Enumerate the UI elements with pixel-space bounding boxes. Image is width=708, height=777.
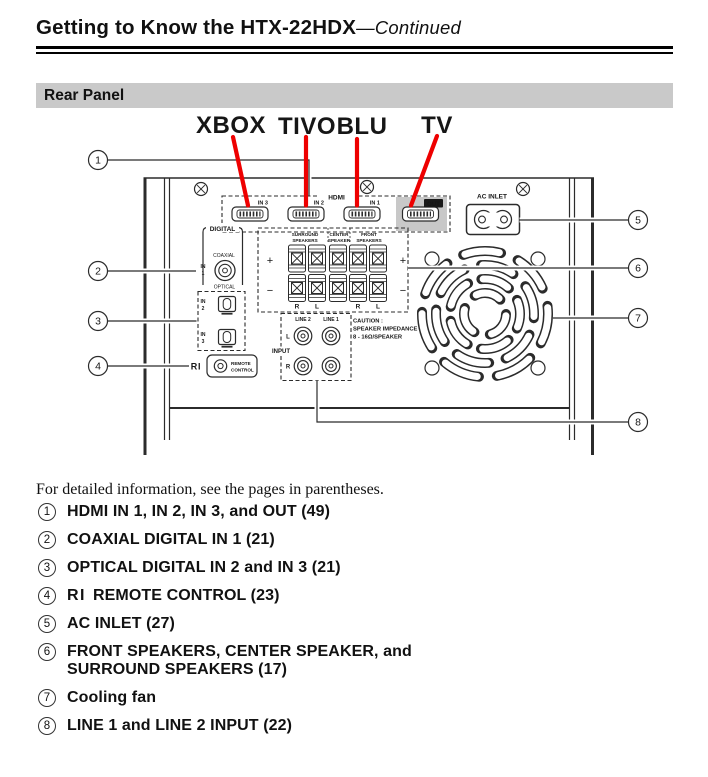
rca-jack: [294, 327, 312, 345]
hdmi-port-in2: [288, 207, 324, 221]
legend-item-text-rest: REMOTE CONTROL (23): [93, 587, 280, 604]
minus-left: −: [267, 285, 273, 297]
speaker-terminal: [289, 245, 306, 272]
speaker-terminal: [370, 275, 387, 302]
surround-r-label: R: [295, 304, 300, 311]
legend-item-text: COAXIAL DIGITAL IN 1 (21): [67, 531, 275, 549]
line-r-label: R: [286, 365, 291, 371]
legend-item: 2 COAXIAL DIGITAL IN 1 (21): [38, 531, 499, 549]
legend-item-text: LINE 1 and LINE 2 INPUT (22): [67, 717, 292, 735]
page-title: Getting to Know the HTX-22HDX—Continued: [36, 16, 461, 40]
caution-line-2: SPEAKER IMPEDANCE: [353, 327, 418, 333]
hdmi-group-label: HDMI: [328, 195, 345, 202]
minus-right: −: [400, 285, 406, 297]
legend-item: 7 Cooling fan: [38, 689, 499, 707]
caution-line-1: CAUTION :: [353, 319, 383, 325]
speaker-terminal: [330, 245, 347, 272]
coaxial-in-word: IN: [201, 264, 206, 270]
callout-7: 7: [635, 313, 641, 325]
center-label-1: CENTER: [330, 232, 350, 237]
legend-item-number: 6: [38, 643, 56, 661]
digital-group: DIGITAL COAXIAL IN 1 OPTICAL IN 2 IN 3: [198, 223, 245, 351]
speaker-terminal: [350, 245, 367, 272]
legend-item-number: 7: [38, 689, 56, 707]
title-divider: [36, 46, 673, 54]
legend-item: 5 AC INLET (27): [38, 615, 499, 633]
legend-item: 1 HDMI IN 1, IN 2, IN 3, and OUT (49): [38, 503, 499, 521]
annotation-tivo: TIVO: [278, 113, 336, 140]
center-label-2: SPEAKER: [328, 238, 351, 243]
legend-list: 1 HDMI IN 1, IN 2, IN 3, and OUT (49) 2 …: [38, 503, 499, 735]
front-label-1: FRONT: [361, 232, 377, 237]
annotation-xbox: XBOX: [196, 112, 266, 139]
legend-item-number: 8: [38, 717, 56, 735]
optical-port-in2: [219, 297, 236, 314]
callout-5: 5: [635, 215, 641, 227]
rca-jack: [322, 327, 340, 345]
line1-label: LINE 1: [323, 317, 339, 323]
coaxial-jack: [215, 261, 235, 281]
callout-1: 1: [95, 155, 101, 167]
optical-in2-num: 2: [202, 306, 205, 312]
ac-inlet-group: AC INLET: [467, 194, 520, 235]
remote-label-2: CONTROL: [231, 368, 254, 373]
rca-jack: [322, 357, 340, 375]
legend-item-number: 2: [38, 531, 56, 549]
rca-jack: [294, 357, 312, 375]
optical-label: OPTICAL: [214, 285, 236, 291]
legend-item-number: 3: [38, 559, 56, 577]
speaker-terminal: [309, 275, 326, 302]
optical-port-in3: [219, 330, 236, 347]
line2-label: LINE 2: [295, 317, 311, 323]
remote-label-1: REMOTE: [231, 361, 251, 366]
callout-3: 3: [95, 316, 101, 328]
manual-page: Getting to Know the HTX-22HDX—Continued …: [0, 0, 708, 777]
input-label: INPUT: [272, 349, 290, 355]
legend-item-text: OPTICAL DIGITAL IN 2 and IN 3 (21): [67, 559, 341, 577]
red-annotation-labels: XBOX TIVO BLU TV: [196, 112, 453, 140]
surround-l-label: L: [315, 304, 319, 311]
front-r-label: R: [356, 304, 361, 311]
annotation-blu: BLU: [337, 113, 388, 140]
legend-item-text: AC INLET (27): [67, 615, 175, 633]
hdmi-in2-label: IN 2: [314, 201, 324, 207]
callout-2: 2: [95, 266, 101, 278]
coaxial-label: COAXIAL: [213, 253, 235, 259]
digital-group-label: DIGITAL: [210, 226, 236, 233]
callout-8: 8: [635, 417, 641, 429]
legend-item: 6 FRONT SPEAKERS, CENTER SPEAKER, and SU…: [38, 643, 499, 679]
remote-jack: [214, 360, 226, 372]
legend-item-number: 1: [38, 503, 56, 521]
line-input-group: LINE 2 LINE 1 L R INPUT: [271, 314, 351, 381]
legend-intro: For detailed information, see the pages …: [36, 481, 384, 499]
speaker-terminal: [370, 245, 387, 272]
speaker-terminal: [289, 275, 306, 302]
hdmi-in3-label: IN 3: [258, 201, 268, 207]
surround-label-2: SPEAKERS: [292, 238, 317, 243]
optical-in3-word: IN: [201, 332, 206, 338]
legend-item-number: 5: [38, 615, 56, 633]
section-header-label: Rear Panel: [44, 87, 124, 104]
legend-item: 4 RIREMOTE CONTROL (23): [38, 587, 499, 605]
caution-line-3: 8 - 16Ω/SPEAKER: [353, 335, 403, 341]
hdmi-out-label: OUT: [427, 202, 440, 208]
front-l-label: L: [376, 304, 380, 311]
legend-item: 8 LINE 1 and LINE 2 INPUT (22): [38, 717, 499, 735]
hdmi-port-in3: [232, 207, 268, 221]
ri-logo: RI: [191, 362, 202, 372]
rear-panel-diagram: HDMI IN 3 IN 2 IN 1: [0, 105, 708, 477]
legend-item: 3 OPTICAL DIGITAL IN 2 and IN 3 (21): [38, 559, 499, 577]
optical-in3-num: 3: [202, 339, 205, 345]
caution-note: CAUTION : SPEAKER IMPEDANCE 8 - 16Ω/SPEA…: [353, 319, 418, 341]
plus-left: +: [267, 255, 273, 267]
callout-4: 4: [95, 361, 101, 373]
ac-inlet-label: AC INLET: [477, 194, 507, 201]
plus-right: +: [400, 255, 406, 267]
speaker-terminal: [350, 275, 367, 302]
hdmi-in1-label: IN 1: [370, 201, 380, 207]
callout-6: 6: [635, 263, 641, 275]
hdmi-port-out: [403, 207, 439, 221]
legend-item-text: RIREMOTE CONTROL (23): [67, 587, 280, 605]
annotation-tv: TV: [421, 112, 453, 139]
speaker-terminal: [330, 275, 347, 302]
ri-logo-inline: RI: [67, 587, 86, 604]
speaker-terminal: [309, 245, 326, 272]
line-l-label: L: [286, 335, 290, 341]
speaker-terminal-group: SURROUND SPEAKERS CENTER SPEAKER FRONT S…: [258, 228, 408, 312]
legend-item-text: HDMI IN 1, IN 2, IN 3, and OUT (49): [67, 503, 330, 521]
coaxial-in-num: 1: [202, 271, 205, 277]
hdmi-port-in1: [344, 207, 380, 221]
legend-item-text: Cooling fan: [67, 689, 156, 707]
legend-item-number: 4: [38, 587, 56, 605]
remote-control-group: RI REMOTE CONTROL: [191, 355, 257, 377]
page-title-suffix: —Continued: [356, 17, 461, 38]
page-title-main: Getting to Know the HTX-22HDX: [36, 16, 356, 39]
callout-lines: [108, 160, 629, 422]
front-label-2: SPEAKERS: [356, 238, 381, 243]
legend-item-text: FRONT SPEAKERS, CENTER SPEAKER, and SURR…: [67, 643, 499, 679]
callout-numbers: 1 2 3 4 5 6 7 8: [89, 151, 648, 432]
optical-in2-word: IN: [201, 299, 206, 305]
surround-label-1: SURROUND: [292, 232, 319, 237]
